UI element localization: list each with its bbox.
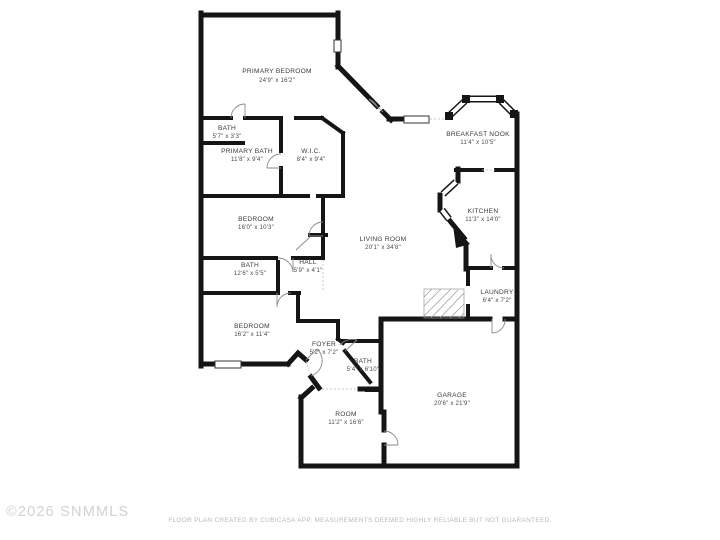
room-name-bedroom-lower: BEDROOM [234,323,270,330]
room-name-foyer: FOYER [312,341,336,348]
room-dims-room: 11'2" x 16'6" [328,419,364,426]
room-name-bedroom-mid: BEDROOM [238,216,274,223]
room-dims-primary-bedroom: 24'9" x 16'2" [259,77,295,84]
window-primary-bedroom [334,40,341,52]
room-dims-bath-foyer: 5'4" x 6'10" [347,366,379,373]
room-name-room: ROOM [335,411,357,418]
room-name-bath-small: BATH [218,125,236,132]
room-name-garage: GARAGE [437,392,467,399]
room-dims-kitchen: 11'3" x 14'0" [465,216,501,223]
room-name-living-room: LIVING ROOM [360,236,407,243]
bay-corner-post [510,110,518,118]
bay-corner-post [496,95,504,103]
room-dims-laundry: 6'4" x 7'2" [483,297,512,304]
bay-corner-post [445,112,453,120]
room-name-breakfast-nook: BREAKFAST NOOK [446,131,510,138]
window-bedroom [215,361,241,368]
room-dims-bedroom-lower: 16'2" x 11'4" [234,331,270,338]
window-living [404,116,429,123]
room-name-wic: W.I.C. [301,148,320,155]
room-name-kitchen: KITCHEN [468,208,499,215]
stairs-hatching [424,289,464,318]
mls-watermark: ©2026 SNMMLS [6,504,129,520]
room-dims-wic: 8'4" x 9'4" [297,156,326,163]
room-dims-bedroom-mid: 16'0" x 10'3" [238,224,274,231]
room-labels: PRIMARY BEDROOM 24'9" x 16'2" BATH 5'7" … [213,68,514,426]
room-name-hall: HALL [299,259,317,266]
room-dims-primary-bath: 11'8" x 9'4" [231,156,263,163]
bay-corner-post [462,95,470,103]
room-name-primary-bedroom: PRIMARY BEDROOM [242,68,311,75]
room-dims-living-room: 20'1" x 34'8" [365,244,401,251]
room-name-primary-bath: PRIMARY BATH [221,148,273,155]
room-dims-bath-hall: 12'6" x 5'5" [234,270,266,277]
room-dims-breakfast-nook: 11'4" x 10'5" [460,139,496,146]
floorplan-svg: PRIMARY BEDROOM 24'9" x 16'2" BATH 5'7" … [0,0,720,540]
floorplan-page: PRIMARY BEDROOM 24'9" x 16'2" BATH 5'7" … [0,0,720,540]
room-dims-bath-small: 5'7" x 3'3" [213,133,242,140]
room-dims-foyer: 5'2" x 7'2" [310,349,339,356]
stairs [424,289,464,318]
room-name-bath-hall: BATH [241,262,259,269]
room-dims-garage: 20'6" x 21'9" [434,400,470,407]
room-dims-hall: 5'9" x 4'1" [294,267,323,274]
room-name-laundry: LAUNDRY [480,289,513,296]
footer-disclaimer: FLOOR PLAN CREATED BY CUBICASA APP. MEAS… [168,517,551,524]
kitchen-corner-accent [453,225,470,248]
room-name-bath-foyer: BATH [354,358,372,365]
